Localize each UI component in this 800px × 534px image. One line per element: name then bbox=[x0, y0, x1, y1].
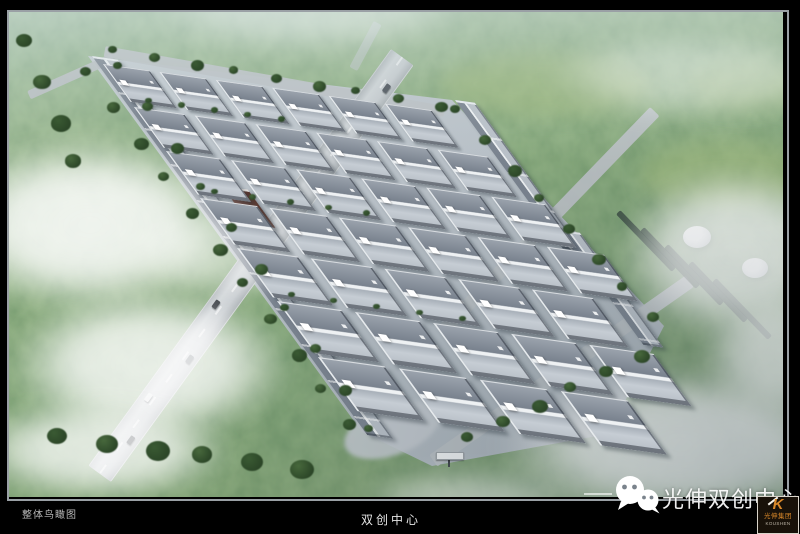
tree bbox=[145, 98, 152, 104]
tree bbox=[186, 208, 199, 219]
tree bbox=[80, 67, 91, 76]
tree bbox=[211, 189, 218, 195]
wechat-icon bbox=[614, 474, 664, 521]
tree bbox=[508, 165, 522, 176]
tree bbox=[534, 194, 544, 202]
company-logo: K 光伸集团 KOUSHEN bbox=[757, 496, 799, 534]
tree bbox=[146, 441, 170, 461]
watermark-line bbox=[584, 493, 612, 495]
tree bbox=[647, 312, 659, 322]
tree bbox=[351, 87, 360, 94]
tree bbox=[292, 349, 307, 361]
tree bbox=[255, 264, 268, 275]
tree bbox=[178, 102, 185, 108]
tree bbox=[65, 154, 81, 167]
tree bbox=[592, 254, 606, 265]
tree bbox=[171, 143, 184, 154]
entrance-sign bbox=[436, 452, 464, 460]
tree bbox=[237, 278, 248, 287]
aerial-rendering-scene bbox=[9, 12, 783, 497]
tree bbox=[192, 446, 212, 462]
tree bbox=[343, 419, 356, 430]
tree bbox=[634, 350, 650, 363]
tree bbox=[191, 60, 204, 71]
tree bbox=[563, 224, 575, 234]
tree bbox=[564, 382, 576, 392]
tree bbox=[96, 435, 118, 453]
tree bbox=[339, 385, 352, 396]
logo-name-cn: 光伸集团 bbox=[758, 513, 798, 521]
tree bbox=[213, 244, 228, 256]
tree bbox=[249, 194, 256, 200]
tree bbox=[325, 205, 332, 211]
tree bbox=[315, 384, 326, 393]
tree bbox=[107, 102, 120, 113]
tree bbox=[108, 46, 117, 53]
tree bbox=[363, 210, 370, 216]
tree bbox=[617, 282, 627, 290]
tree bbox=[393, 94, 404, 103]
tree bbox=[461, 432, 473, 442]
tree bbox=[51, 115, 71, 131]
tree bbox=[211, 107, 218, 113]
tree bbox=[288, 292, 295, 298]
tree bbox=[532, 400, 548, 413]
tree bbox=[278, 116, 285, 122]
aerial-rendering-page: 整体鸟瞰图 双创中心 光伸双创中心 K 光伸集团 KOUSHEN bbox=[0, 0, 800, 534]
logo-letter: K bbox=[758, 497, 798, 513]
tree bbox=[416, 310, 423, 316]
logo-name-en: KOUSHEN bbox=[758, 521, 798, 527]
tree bbox=[459, 316, 466, 322]
tree bbox=[435, 102, 448, 113]
tree bbox=[271, 74, 282, 83]
tree bbox=[113, 62, 122, 69]
tree bbox=[479, 135, 491, 145]
tree bbox=[313, 81, 326, 92]
tree bbox=[229, 66, 238, 73]
tree bbox=[241, 453, 263, 471]
tree bbox=[287, 199, 294, 205]
tree bbox=[16, 34, 32, 47]
